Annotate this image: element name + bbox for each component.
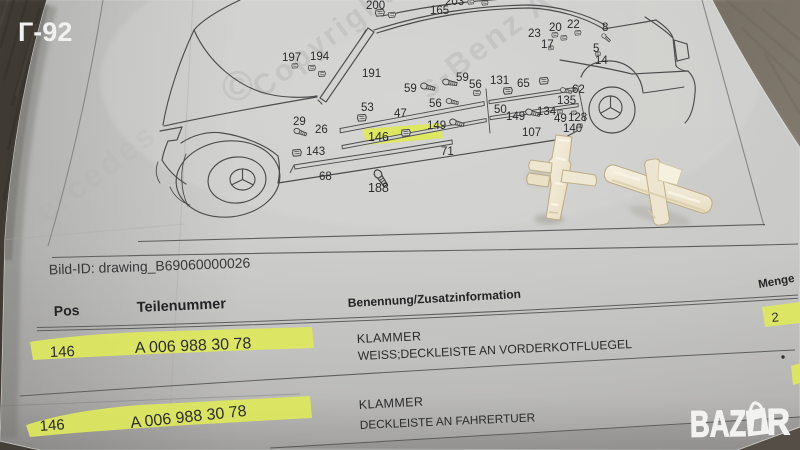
- svg-text:Pos: Pos: [53, 302, 80, 319]
- svg-text:22: 22: [567, 19, 580, 31]
- svg-text:17: 17: [541, 39, 554, 51]
- svg-text:20: 20: [549, 22, 562, 34]
- svg-text:29: 29: [293, 116, 306, 128]
- svg-text:©: ©: [222, 62, 253, 109]
- svg-text:14: 14: [595, 55, 608, 67]
- svg-text:149: 149: [506, 111, 525, 123]
- svg-text:194: 194: [310, 51, 330, 63]
- svg-text:68: 68: [319, 171, 332, 183]
- svg-text:65: 65: [517, 78, 530, 90]
- svg-text:56: 56: [469, 79, 482, 91]
- svg-text:8: 8: [602, 22, 608, 34]
- svg-text:146: 146: [50, 343, 76, 361]
- svg-text:26: 26: [315, 124, 328, 136]
- svg-text:Г-92: Г-92: [18, 17, 72, 47]
- svg-text:107: 107: [522, 127, 541, 139]
- svg-text:53: 53: [361, 102, 374, 114]
- svg-text:165: 165: [430, 5, 449, 17]
- svg-text:71: 71: [441, 146, 454, 158]
- svg-text:188: 188: [368, 181, 389, 195]
- svg-text:131: 131: [490, 75, 509, 87]
- svg-text:47: 47: [394, 108, 407, 120]
- svg-text:149: 149: [427, 120, 446, 132]
- svg-text:5: 5: [593, 43, 599, 55]
- svg-text:56: 56: [429, 98, 442, 110]
- svg-text:59: 59: [404, 83, 417, 95]
- svg-text:R: R: [767, 401, 791, 442]
- svg-text:50: 50: [494, 104, 507, 116]
- svg-text:200: 200: [366, 0, 385, 12]
- svg-text:135: 135: [557, 95, 576, 107]
- svg-text:146: 146: [368, 130, 389, 144]
- svg-text:140: 140: [563, 123, 582, 135]
- svg-text:23: 23: [528, 28, 541, 40]
- svg-text:KLAMMER: KLAMMER: [357, 329, 422, 346]
- svg-text:59: 59: [456, 72, 469, 84]
- svg-text:197: 197: [282, 52, 301, 64]
- svg-text:BAZ: BAZ: [690, 403, 747, 445]
- svg-text:146: 146: [39, 416, 65, 435]
- svg-text:143: 143: [306, 146, 325, 158]
- svg-text:191: 191: [362, 68, 381, 80]
